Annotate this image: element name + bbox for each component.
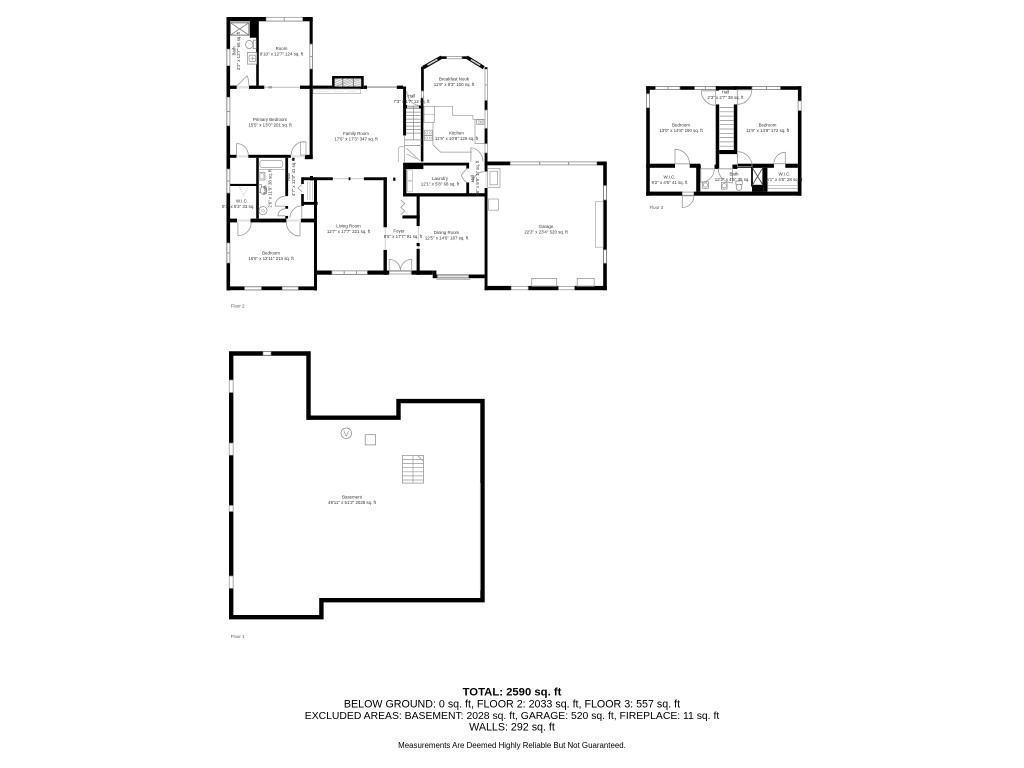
svg-text:Room: Room <box>276 46 288 51</box>
svg-text:12'2" x 4'5" 35 sq. ft: 12'2" x 4'5" 35 sq. ft <box>715 177 754 182</box>
svg-text:EXCLUDED AREAS: BASEMENT: 2028: EXCLUDED AREAS: BASEMENT: 2028 sq. ft, G… <box>305 711 720 722</box>
svg-text:12'7" x 17'7" 221 sq. ft: 12'7" x 17'7" 221 sq. ft <box>327 229 371 234</box>
svg-text:6'1" x 4'6" 28 sq. ft: 6'1" x 4'6" 28 sq. ft <box>766 177 803 182</box>
svg-text:11'9" x 10'8" 126 sq. ft: 11'9" x 10'8" 126 sq. ft <box>435 136 479 141</box>
svg-text:11'9" x 9'3" 100 sq. ft: 11'9" x 9'3" 100 sq. ft <box>434 82 475 87</box>
svg-text:Dining Room: Dining Room <box>434 230 460 235</box>
svg-text:Bedroom: Bedroom <box>262 251 280 256</box>
svg-text:17'6" x 17'3" 347 sq. ft: 17'6" x 17'3" 347 sq. ft <box>334 137 378 142</box>
svg-text:2'3" x 2'7" 38 sq. ft: 2'3" x 2'7" 38 sq. ft <box>707 95 744 100</box>
svg-text:16'6" x 12'11" 213 sq. ft: 16'6" x 12'11" 213 sq. ft <box>248 256 294 261</box>
svg-text:2'6" x 11'9" 38 sq. ft: 2'6" x 11'9" 38 sq. ft <box>268 169 273 208</box>
svg-text:4'7" x 11'9" 41 sq. ft: 4'7" x 11'9" 41 sq. ft <box>291 157 296 196</box>
svg-text:TOTAL: 2590 sq. ft: TOTAL: 2590 sq. ft <box>463 687 562 699</box>
svg-text:W.I.C.: W.I.C. <box>664 175 676 180</box>
svg-text:WALLS: 292 sq. ft: WALLS: 292 sq. ft <box>469 722 555 734</box>
svg-text:Foyer: Foyer <box>393 229 405 234</box>
svg-text:Breakfast Nook: Breakfast Nook <box>439 77 470 82</box>
svg-text:Hall: Hall <box>408 94 416 99</box>
svg-text:49'11" x 51'2" 2028 sq. ft: 49'11" x 51'2" 2028 sq. ft <box>328 500 377 505</box>
svg-text:Bedroom: Bedroom <box>759 123 777 128</box>
svg-text:Living Room: Living Room <box>336 224 361 229</box>
svg-text:7'3" x 1'7" 12 sq. ft: 7'3" x 1'7" 12 sq. ft <box>393 99 430 104</box>
svg-text:9'2" x 4'6" 41 sq. ft: 9'2" x 4'6" 41 sq. ft <box>651 180 688 185</box>
svg-text:13'0" x 14'8" 190 sq. ft: 13'0" x 14'8" 190 sq. ft <box>659 128 703 133</box>
svg-text:Family Room: Family Room <box>343 131 369 136</box>
svg-text:Measurements Are Deemed Highly: Measurements Are Deemed Highly Reliable … <box>398 741 626 750</box>
svg-text:Floor 1: Floor 1 <box>231 634 245 639</box>
svg-text:W.I.C.: W.I.C. <box>779 172 791 177</box>
svg-text:8'5" x 17'7" 91 sq. ft: 8'5" x 17'7" 91 sq. ft <box>384 234 423 239</box>
svg-text:Basement: Basement <box>342 495 363 500</box>
svg-text:Bedroom: Bedroom <box>672 123 690 128</box>
svg-text:15'5" x 13'0" 201 sq. ft: 15'5" x 13'0" 201 sq. ft <box>248 123 292 128</box>
svg-text:12'1" x 5'8" 68 sq. ft: 12'1" x 5'8" 68 sq. ft <box>421 182 460 187</box>
svg-text:3'6" x 5'9" 17 sq. ft: 3'6" x 5'9" 17 sq. ft <box>475 160 480 197</box>
svg-text:Floor 2: Floor 2 <box>231 304 245 309</box>
svg-text:12'5" x 14'6" 187 sq. ft: 12'5" x 14'6" 187 sq. ft <box>425 236 469 241</box>
svg-text:Garage: Garage <box>539 224 554 229</box>
svg-text:5'1" x 6'3" 33 sq. ft: 5'1" x 6'3" 33 sq. ft <box>222 204 259 209</box>
svg-text:Primary Bedroom: Primary Bedroom <box>253 117 288 122</box>
svg-text:9'10" x 12'7" 124 sq. ft: 9'10" x 12'7" 124 sq. ft <box>260 52 304 57</box>
svg-text:Hall: Hall <box>722 90 730 95</box>
svg-text:11'9" x 14'8" 172 sq. ft: 11'9" x 14'8" 172 sq. ft <box>746 128 790 133</box>
svg-text:Bath: Bath <box>729 172 739 177</box>
svg-text:BELOW GROUND: 0 sq. ft, FLOOR: BELOW GROUND: 0 sq. ft, FLOOR 2: 2033 sq… <box>344 699 680 711</box>
svg-text:Kitchen: Kitchen <box>449 131 464 136</box>
svg-text:22'3" x 23'4" 520 sq. ft: 22'3" x 23'4" 520 sq. ft <box>524 230 568 235</box>
svg-text:3'2" x 12'7" 66 sq. ft: 3'2" x 12'7" 66 sq. ft <box>236 31 241 70</box>
svg-text:Bath: Bath <box>262 185 267 195</box>
svg-text:Laundry: Laundry <box>432 176 449 181</box>
svg-text:Floor 3: Floor 3 <box>650 205 664 210</box>
svg-text:W.I.C.: W.I.C. <box>236 199 248 204</box>
